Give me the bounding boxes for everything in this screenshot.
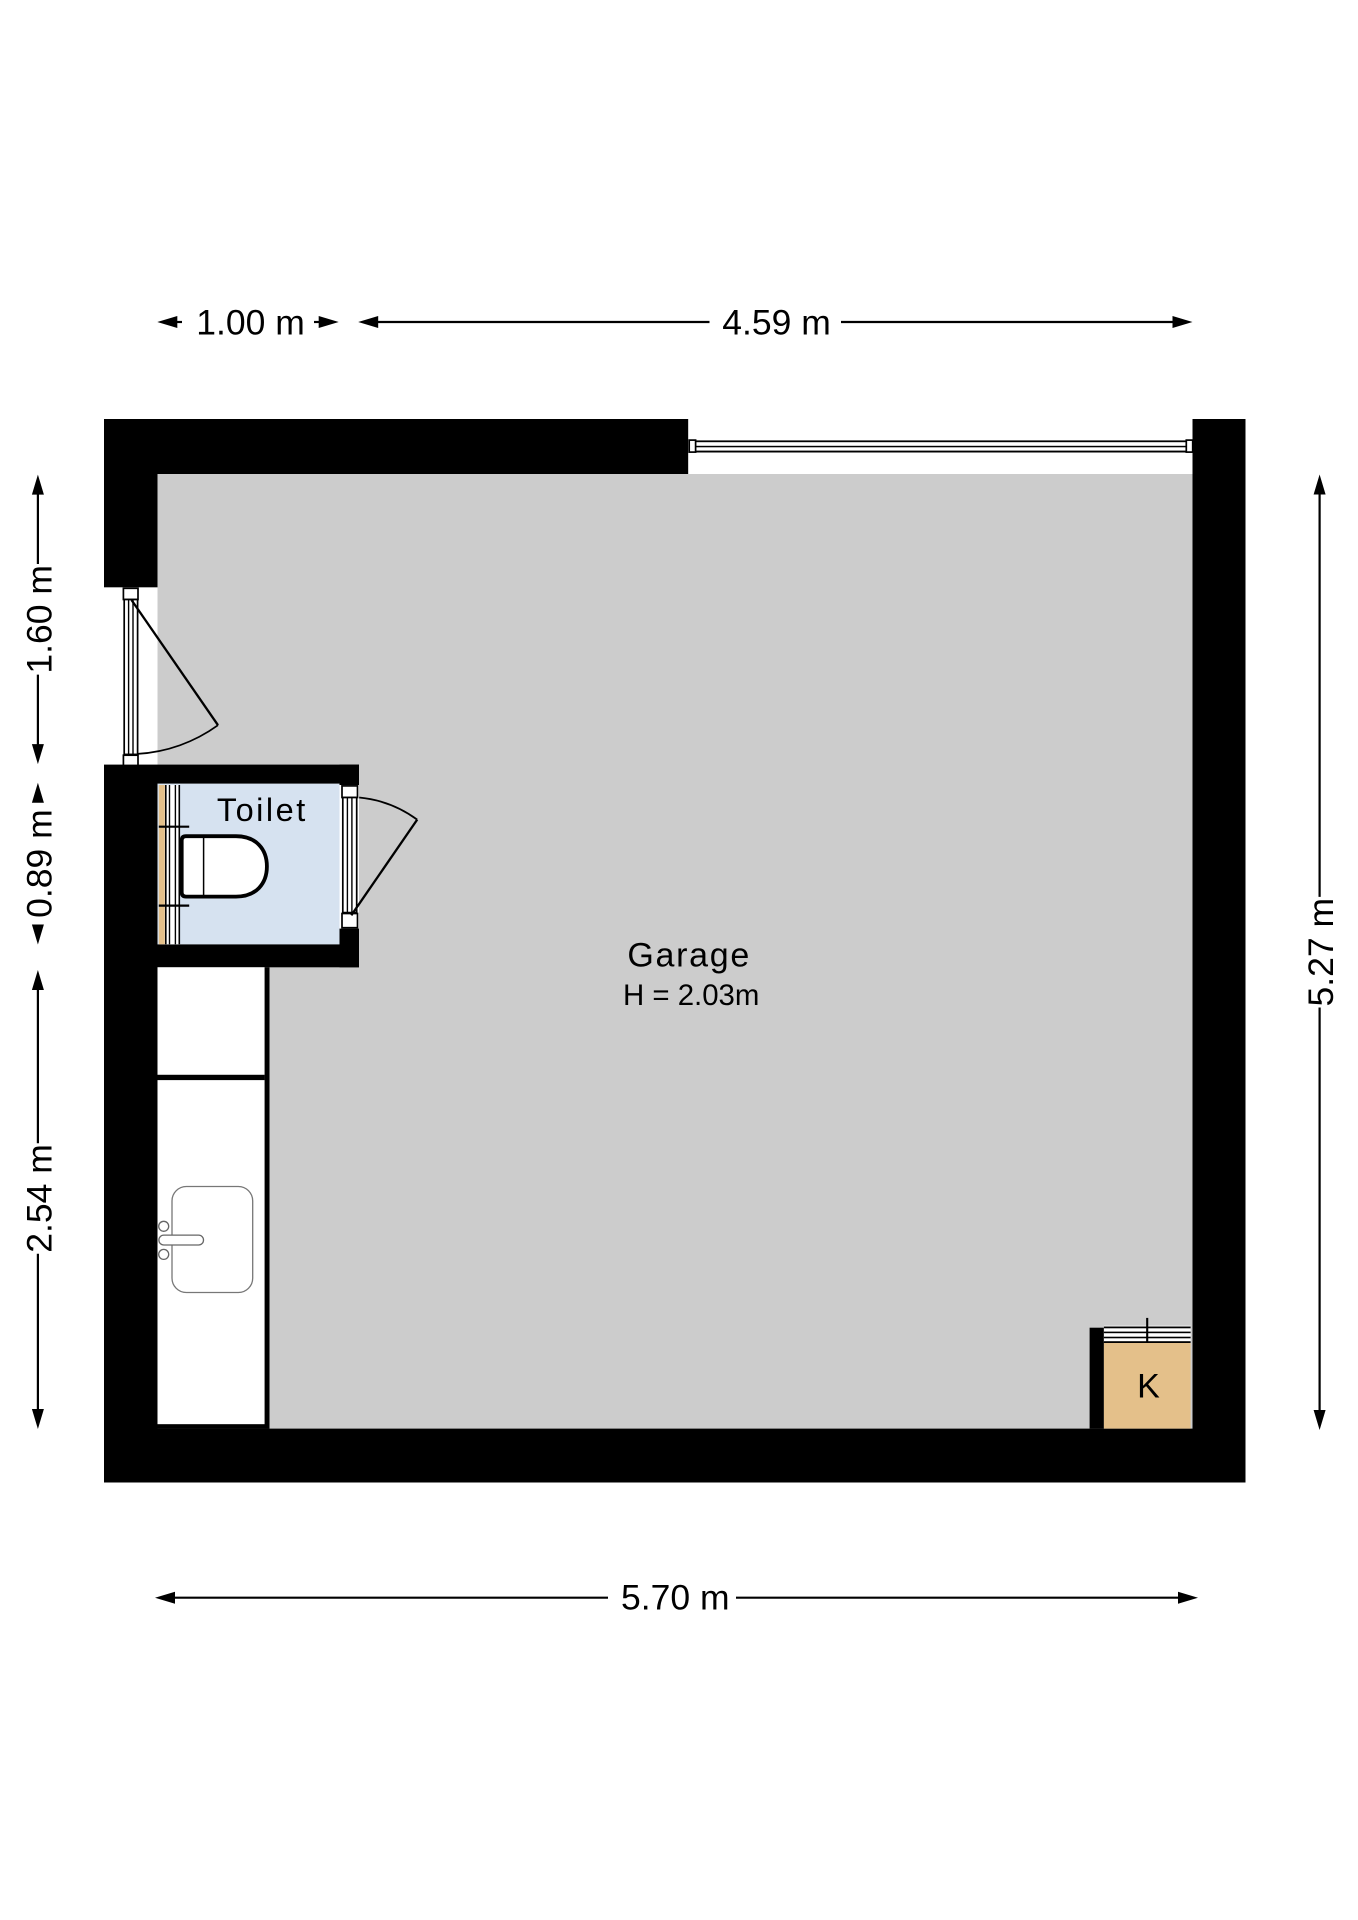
svg-text:4.59 m: 4.59 m — [722, 303, 831, 343]
svg-text:0.89 m: 0.89 m — [19, 809, 59, 918]
svg-text:Toilet: Toilet — [217, 792, 308, 828]
svg-text:5.27 m: 5.27 m — [1301, 898, 1341, 1007]
svg-text:K: K — [1137, 1367, 1160, 1405]
svg-text:Garage: Garage — [627, 936, 751, 974]
svg-text:H = 2.03m: H = 2.03m — [623, 979, 759, 1012]
svg-text:1.00 m: 1.00 m — [196, 303, 305, 343]
svg-text:1.60 m: 1.60 m — [19, 565, 59, 674]
svg-text:2.54 m: 2.54 m — [19, 1144, 59, 1253]
svg-text:5.70 m: 5.70 m — [621, 1578, 730, 1618]
